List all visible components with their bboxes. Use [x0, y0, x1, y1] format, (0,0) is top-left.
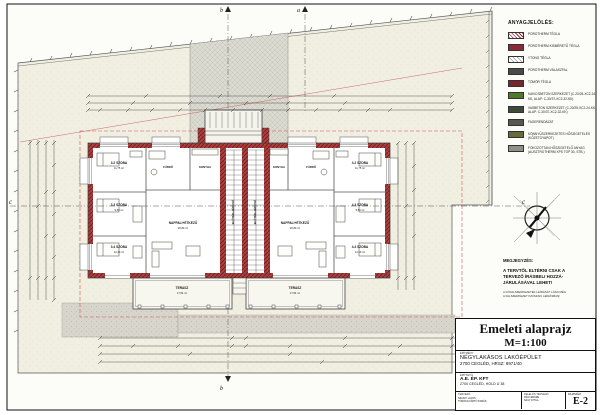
room-area: 11,75 m² — [114, 166, 124, 170]
terrace-label: TERASZ — [289, 286, 302, 290]
room-label: KONYHA — [199, 165, 211, 169]
client-row: ÉPÍTTETŐ: A.E. ÉP. KFT 2700 CEGLÉD, HOLD… — [456, 373, 595, 392]
swatch-partition — [508, 68, 524, 75]
room-label: 3.3 SZOBA — [111, 203, 128, 207]
terrace-area: 17,54 m² — [290, 291, 300, 295]
room-area: 26,80 m² — [178, 226, 188, 230]
swatch-small-brick — [508, 44, 524, 51]
drawing-scale: M=1:100 — [456, 337, 595, 349]
room-label: 4.3 SZOBA — [352, 203, 369, 207]
room-label: 3.2 SZOBA — [111, 161, 128, 165]
section-letter: b — [220, 386, 223, 392]
room-area: 26,80 m² — [290, 226, 300, 230]
notes-block: MEGJEGYZÉS: A TERVTŐL ELTÉRNI CSAK A TER… — [503, 258, 596, 299]
rear-stoop — [233, 278, 246, 294]
walkway-bottom — [178, 315, 455, 333]
swatch-ytong — [508, 56, 524, 63]
entry-porch — [198, 110, 269, 143]
room-area: 12,10 m² — [355, 250, 365, 254]
room-label: 4.2 SZOBA — [352, 161, 369, 165]
notes-heading: MEGJEGYZÉS: — [503, 258, 596, 263]
legend-item: POROTHERM KISMÉRETŰ TÉGLA — [508, 44, 600, 51]
stair-label: ELŐTÉR+LÉPCSŐ — [230, 199, 235, 224]
stair-wall — [220, 148, 226, 273]
note-line: JÁRULÁSÁVAL LEHET! — [503, 280, 596, 286]
legend-item: KAVICSBETON SZERKEZET (C-20/25-XC2-24-KK… — [508, 92, 600, 101]
checker-name: NAGY ATTILA — [524, 400, 563, 403]
designer-cell: TERVEZŐ: SZANYI LAJOS TÖRÖKGYÁRTÓ TAMÁS — [456, 392, 522, 409]
room-area: 12,10 m² — [114, 250, 124, 254]
room-label: FÜRDŐ — [306, 164, 317, 169]
material-legend: ANYAGJELÖLÉS: POROTHERM TÉGLA POROTHERM … — [508, 20, 600, 159]
project-row: ÉPÍTMÉNY: NÉGYLAKÁSOS LAKÓÉPÜLET 2700 CE… — [456, 351, 595, 373]
swatch-reinforced-concrete — [508, 106, 524, 113]
section-letter: b — [220, 8, 223, 14]
legend-item: YTONG TÉGLA — [508, 56, 600, 63]
note-small-line: A FALSZERKEZETI MŰSZAKI LEÍRÁSBAN! — [503, 295, 596, 299]
title-block-header: Emeleti alaprajz M=1:100 — [456, 319, 595, 351]
room-area: 9,50 m² — [115, 208, 124, 212]
title-block: Emeleti alaprajz M=1:100 ÉPÍTMÉNY: NÉGYL… — [455, 318, 596, 411]
drawing-number-cell: RAJZSZÁM: E-2 — [566, 392, 595, 409]
drawing-sheet: b a b c c 3.2 SZOBA 11,75 m² 3.3 SZOBA 9… — [0, 0, 600, 415]
terrace-label: TERASZ — [176, 286, 189, 290]
swatch-porotherm-brick — [508, 32, 524, 39]
drawing-title: Emeleti alaprajz — [456, 319, 595, 337]
room-label: 3.4 SZOBA — [111, 245, 128, 249]
stair-wall — [242, 148, 248, 273]
drawing-number: E-2 — [566, 396, 595, 407]
checker-cell: FELELŐS TERVEZŐ: PÁLFI ENDRE NAGY ATTILA — [522, 392, 566, 409]
legend-item: FAGERENDÁZAT — [508, 119, 600, 126]
client-address: 2700 CEGLÉD, HOLD U 38 — [460, 382, 591, 386]
legend-item: FOKOZOTTAN HŐSZIGETELŐ ANYAG (AUSZTROTHE… — [508, 145, 600, 154]
legend-item: VASBETON SZERKEZET (C-20/25-XC2-24-KK, A… — [508, 106, 600, 115]
designer-name: TÖRÖKGYÁRTÓ TAMÁS — [458, 400, 519, 404]
room-label: NAPPALI+ÉTKEZŐ — [169, 220, 198, 225]
room-label: 4.4 SZOBA — [352, 245, 369, 249]
terrace-area: 17,54 m² — [177, 291, 187, 295]
swatch-gravel-concrete — [508, 92, 524, 99]
swatch-insulation — [508, 131, 524, 138]
room-area: 11,75 m² — [355, 166, 365, 170]
signature-row: TERVEZŐ: SZANYI LAJOS TÖRÖKGYÁRTÓ TAMÁS … — [456, 392, 595, 409]
legend-title: ANYAGJELÖLÉS: — [508, 20, 600, 26]
section-letter: a — [297, 8, 300, 14]
legend-item: POROTHERM VÁLASZFAL — [508, 68, 600, 75]
legend-item: POROTHERM TÉGLA — [508, 32, 600, 39]
room-label: KONYHA — [273, 165, 285, 169]
swatch-timber — [508, 119, 524, 126]
project-address: 2700 CEGLÉD, HRSZ: 8971/40 — [460, 361, 591, 366]
room-area: 9,50 m² — [356, 208, 365, 212]
swatch-solid-brick — [508, 80, 524, 87]
stair-wall — [264, 148, 270, 273]
stair-label: ELŐTÉR+LÉPCSŐ — [252, 199, 257, 224]
legend-item: TÖMÖR TÉGLA — [508, 80, 600, 87]
swatch-xps-insulation — [508, 145, 524, 152]
room-label: NAPPALI+ÉTKEZŐ — [281, 220, 310, 225]
room-label: FÜRDŐ — [163, 164, 174, 169]
legend-item: KÖNNYŰSZERKEZETES HŐSZIGETELÉS (KŐZETGYA… — [508, 131, 600, 140]
